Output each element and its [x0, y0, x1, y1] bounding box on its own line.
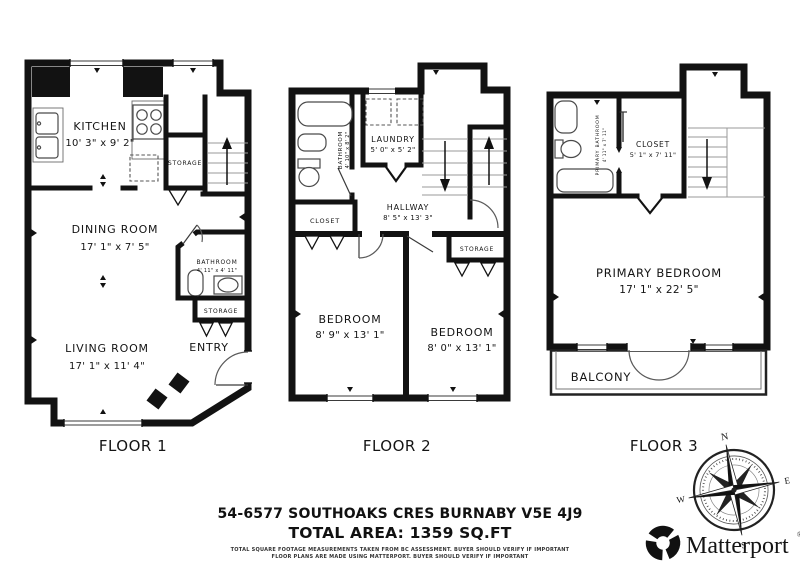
living-room-dims: 17' 1" x 11' 4"	[69, 361, 145, 372]
bathroom-dims: 4' 11" x 4' 11"	[197, 268, 237, 274]
floor3-outer-wall	[550, 67, 767, 347]
dining-room-label: DINING ROOM	[72, 223, 159, 236]
address: 54-6577 SOUTHOAKS CRES BURNABY V5E 4J9	[180, 506, 620, 522]
closet-label: CLOSET	[310, 217, 340, 225]
entry-label: ENTRY	[189, 341, 229, 354]
compass-north-label: N	[720, 431, 729, 443]
floor3-plan: PRIMARY BATHROOM 4' 11" x 7' 11" CLOSET …	[543, 55, 783, 435]
balcony-label: BALCONY	[571, 370, 632, 384]
kitchen-dims: 10' 3" x 9' 2"	[65, 138, 134, 149]
bathroom-label: BATHROOM	[338, 131, 344, 169]
hallway-label: HALLWAY	[387, 203, 429, 212]
toilet-icon	[555, 140, 581, 158]
floor2-plan: BATHROOM 4' 10" x 8' 2" LAUNDRY 5' 0" x …	[285, 55, 515, 435]
floorplan-page: { "floor1": { "label": "FLOOR 1", "kitch…	[0, 0, 800, 565]
stove-icon	[133, 105, 164, 139]
bedroom-label: BEDROOM	[430, 326, 493, 339]
shower-icon	[557, 169, 613, 192]
storage-label: STORAGE	[460, 246, 494, 253]
primary-bedroom-label: PRIMARY BEDROOM	[596, 266, 722, 280]
storage-label: STORAGE	[168, 160, 202, 167]
closet-label: CLOSET	[636, 140, 670, 149]
sink-icon	[298, 134, 326, 151]
floor1-plan: KITCHEN 10' 3" x 9' 2" STORAGE DINING RO…	[20, 55, 256, 435]
primary-bedroom-dims: 17' 1" x 22' 5"	[619, 284, 699, 296]
floor2-caption: FLOOR 2	[342, 437, 452, 455]
closet-dims: 5' 1" x 7' 11"	[630, 151, 677, 159]
floor1-caption: FLOOR 1	[78, 437, 188, 455]
dining-room-dims: 17' 1" x 7' 5"	[80, 242, 149, 253]
bedroom-label: BEDROOM	[318, 313, 381, 326]
matterport-pinwheel-icon	[647, 527, 679, 559]
bathroom-label: BATHROOM	[196, 259, 237, 266]
matterport-logo: Matterport ®	[644, 522, 800, 568]
toilet-icon	[298, 159, 320, 187]
bedroom-dims: 8' 0" x 13' 1"	[427, 343, 496, 354]
toilet-icon	[214, 276, 242, 294]
primary-bathroom-label: PRIMARY BATHROOM	[595, 115, 601, 176]
total-area: TOTAL AREA: 1359 SQ.FT	[180, 524, 620, 542]
living-room-label: LIVING ROOM	[65, 342, 149, 355]
matterport-wordmark: Matterport	[686, 533, 789, 559]
disclaimer-line1: TOTAL SQUARE FOOTAGE MEASUREMENTS TAKEN …	[180, 547, 620, 554]
laundry-dims: 5' 0" x 5' 2"	[370, 146, 415, 154]
bathtub-icon	[298, 102, 352, 126]
bathtub-icon	[555, 101, 577, 133]
hallway-dims: 8' 5" x 13' 3"	[383, 214, 433, 222]
compass-west-label: W	[676, 494, 687, 505]
compass-east-label: E	[784, 475, 792, 486]
kitchen-label: KITCHEN	[73, 120, 126, 133]
bathroom-dims: 4' 10" x 8' 2"	[345, 132, 351, 169]
bedroom-dims: 8' 9" x 13' 1"	[315, 330, 384, 341]
footer: 54-6577 SOUTHOAKS CRES BURNABY V5E 4J9 T…	[180, 506, 620, 561]
disclaimer-line2: FLOOR PLANS ARE MADE USING MATTERPORT. B…	[180, 554, 620, 561]
storage-label: STORAGE	[204, 308, 238, 315]
laundry-label: LAUNDRY	[371, 135, 415, 144]
primary-bathroom-dims: 4' 11" x 7' 11"	[602, 128, 607, 162]
